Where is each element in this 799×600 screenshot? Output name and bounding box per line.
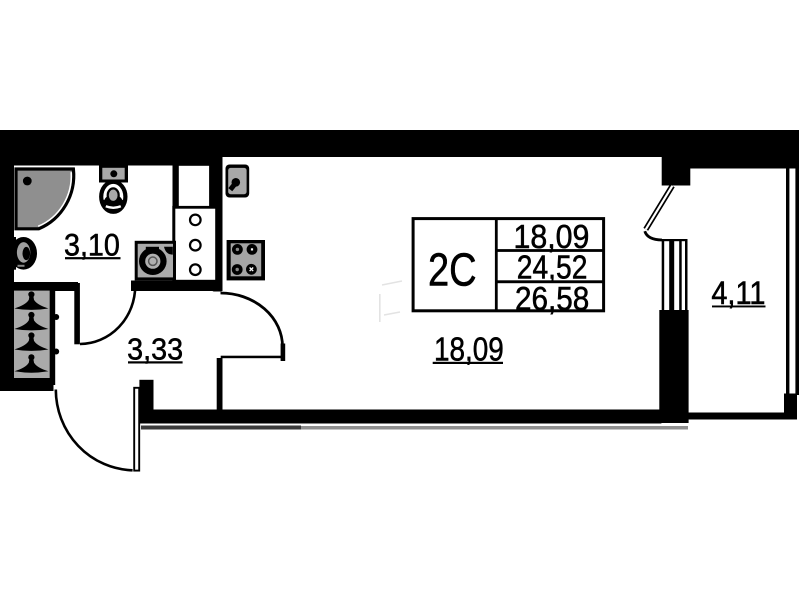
svg-text:2C: 2C <box>428 244 477 295</box>
svg-text:26,58: 26,58 <box>515 281 589 318</box>
